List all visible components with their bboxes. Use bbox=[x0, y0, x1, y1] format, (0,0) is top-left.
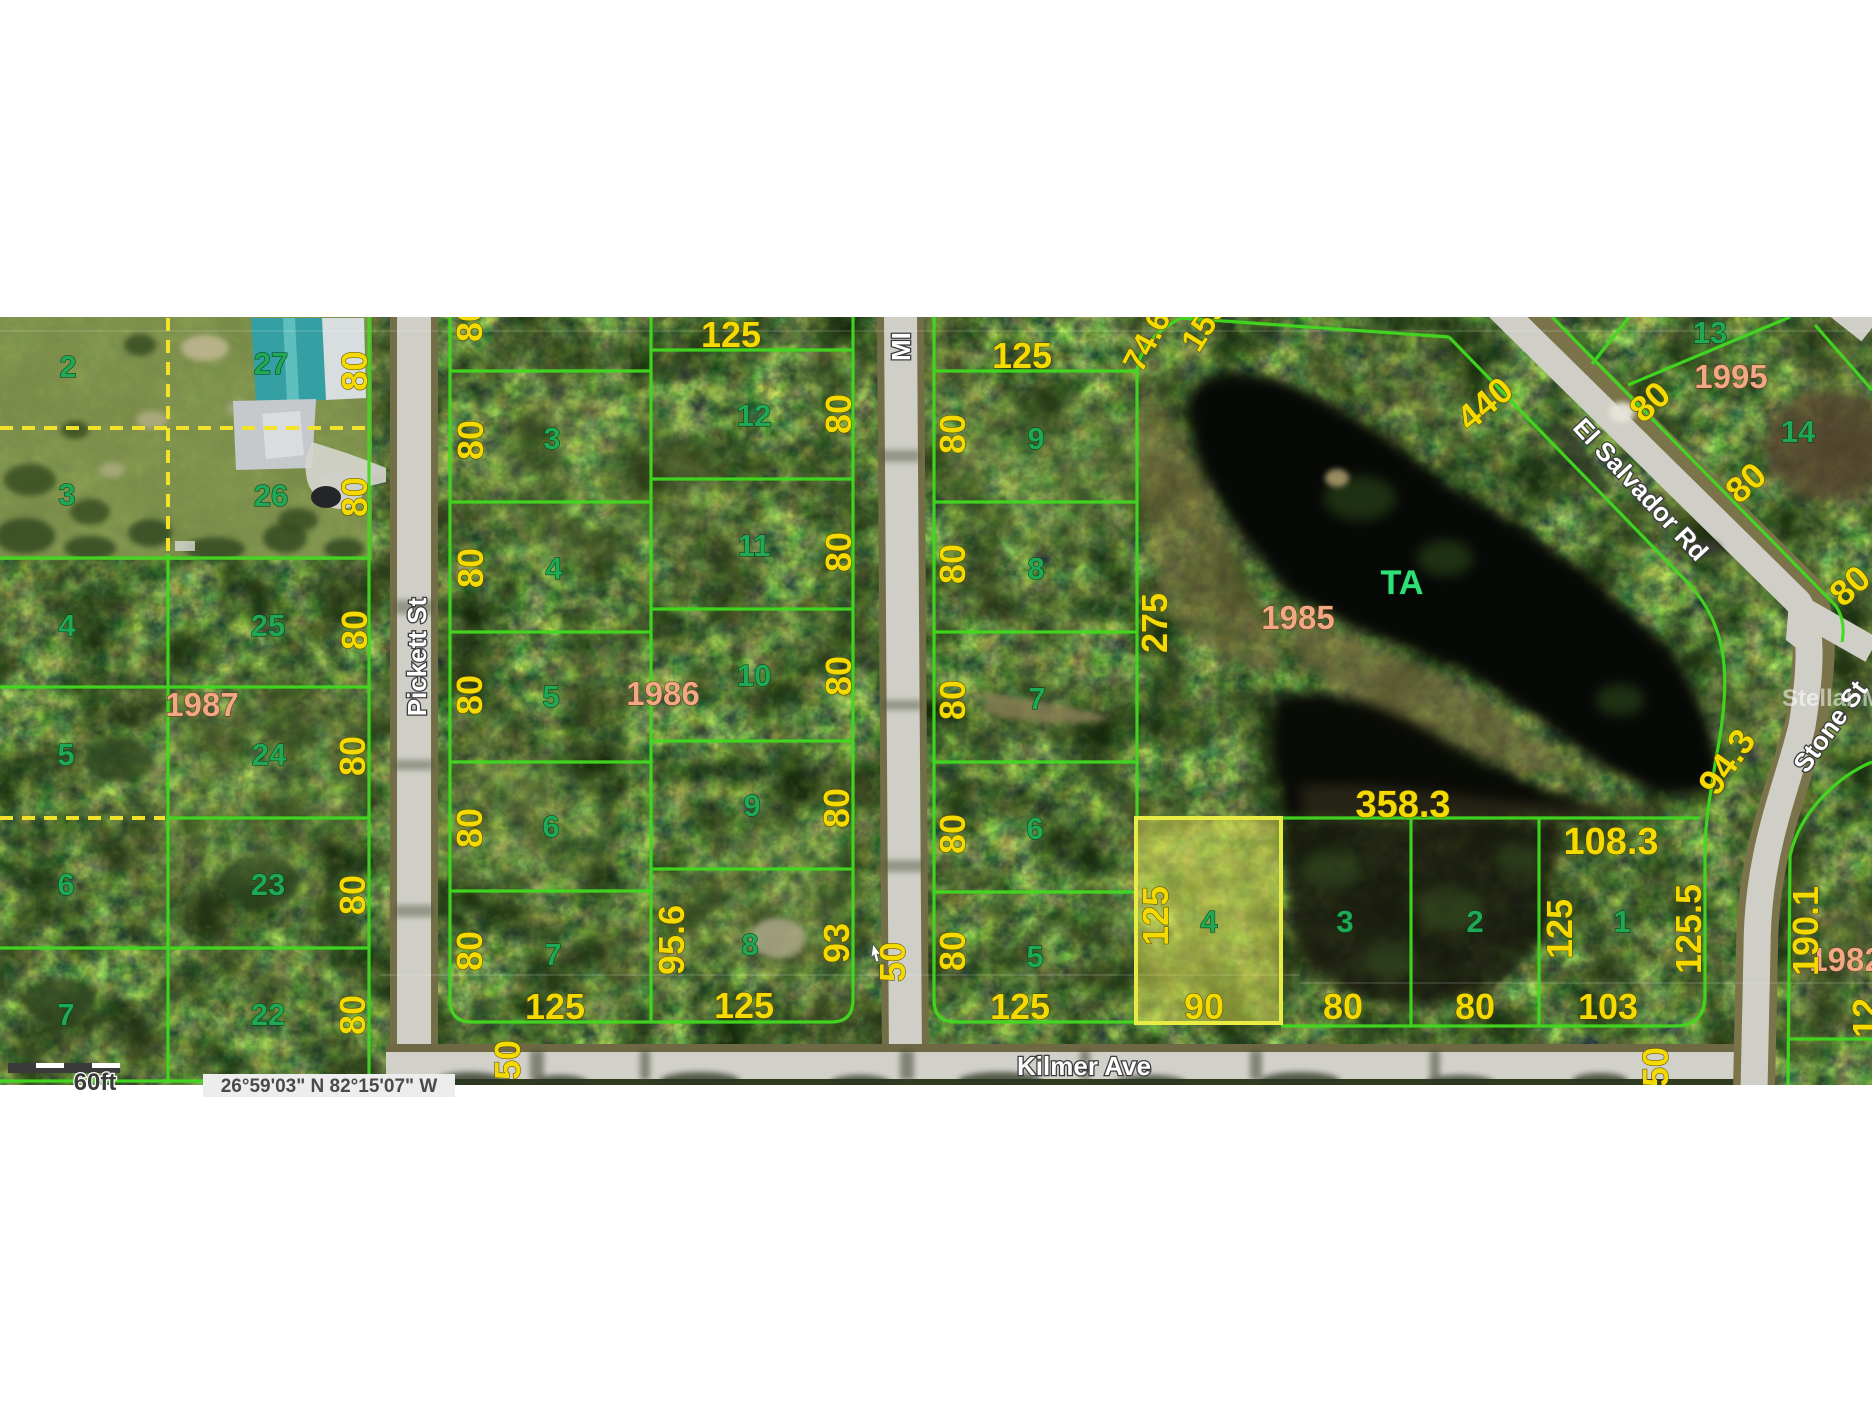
svg-text:3: 3 bbox=[1336, 904, 1353, 939]
svg-text:80: 80 bbox=[449, 808, 490, 848]
svg-text:6: 6 bbox=[1026, 811, 1043, 846]
svg-text:2: 2 bbox=[59, 349, 76, 384]
svg-text:TA: TA bbox=[1381, 564, 1424, 602]
svg-text:3: 3 bbox=[58, 477, 75, 512]
svg-text:80: 80 bbox=[332, 995, 373, 1035]
svg-text:80: 80 bbox=[450, 420, 491, 460]
svg-text:11: 11 bbox=[738, 528, 771, 563]
svg-text:80: 80 bbox=[932, 931, 973, 971]
svg-text:3: 3 bbox=[543, 421, 560, 456]
svg-text:9: 9 bbox=[1027, 421, 1044, 456]
svg-text:9: 9 bbox=[743, 788, 760, 823]
svg-text:125: 125 bbox=[525, 986, 585, 1027]
svg-text:50: 50 bbox=[487, 1040, 528, 1080]
svg-text:80: 80 bbox=[932, 544, 973, 584]
svg-text:125.5: 125.5 bbox=[1668, 884, 1709, 974]
svg-text:125: 125 bbox=[1135, 886, 1176, 946]
svg-text:MI: MI bbox=[886, 332, 916, 361]
svg-text:4: 4 bbox=[545, 551, 563, 586]
svg-text:26: 26 bbox=[254, 478, 288, 513]
svg-text:80: 80 bbox=[334, 477, 375, 517]
svg-text:22: 22 bbox=[251, 997, 285, 1032]
svg-text:Kilmer Ave: Kilmer Ave bbox=[1017, 1051, 1151, 1081]
svg-text:24: 24 bbox=[252, 737, 287, 772]
svg-text:80: 80 bbox=[818, 394, 859, 434]
svg-text:5: 5 bbox=[1026, 939, 1043, 974]
svg-text:12: 12 bbox=[1845, 998, 1872, 1038]
svg-text:93: 93 bbox=[816, 923, 857, 963]
svg-text:80: 80 bbox=[932, 680, 973, 720]
svg-text:80: 80 bbox=[332, 736, 373, 776]
svg-text:50: 50 bbox=[872, 942, 913, 982]
svg-text:103: 103 bbox=[1578, 986, 1638, 1027]
svg-text:1995: 1995 bbox=[1694, 358, 1767, 395]
svg-text:95.6: 95.6 bbox=[651, 905, 692, 975]
svg-text:7: 7 bbox=[544, 937, 561, 972]
svg-text:80: 80 bbox=[449, 931, 490, 971]
svg-text:23: 23 bbox=[251, 867, 285, 902]
svg-text:14: 14 bbox=[1781, 414, 1816, 449]
svg-text:7: 7 bbox=[57, 997, 74, 1032]
svg-text:358.3: 358.3 bbox=[1355, 784, 1450, 826]
svg-text:4: 4 bbox=[58, 608, 76, 643]
svg-text:13: 13 bbox=[1693, 315, 1727, 350]
svg-text:1: 1 bbox=[1613, 904, 1630, 939]
svg-text:5: 5 bbox=[542, 679, 559, 714]
svg-text:125: 125 bbox=[701, 314, 761, 355]
svg-text:125: 125 bbox=[992, 335, 1052, 376]
svg-text:1986: 1986 bbox=[626, 675, 699, 712]
svg-text:50: 50 bbox=[1635, 1047, 1676, 1087]
svg-text:125: 125 bbox=[990, 986, 1050, 1027]
svg-text:80: 80 bbox=[816, 788, 857, 828]
svg-text:90: 90 bbox=[1184, 986, 1224, 1027]
svg-text:80: 80 bbox=[818, 532, 859, 572]
svg-text:8: 8 bbox=[1027, 551, 1044, 586]
svg-text:80: 80 bbox=[332, 875, 373, 915]
svg-text:12: 12 bbox=[737, 398, 771, 433]
svg-text:Stellar MLS: Stellar MLS bbox=[1782, 685, 1872, 712]
svg-text:190.1: 190.1 bbox=[1785, 886, 1826, 976]
svg-text:80: 80 bbox=[450, 548, 491, 588]
svg-text:Pickett St: Pickett St bbox=[402, 597, 432, 716]
svg-text:125: 125 bbox=[1539, 899, 1580, 959]
svg-text:2: 2 bbox=[1466, 904, 1483, 939]
svg-text:80: 80 bbox=[449, 675, 490, 715]
svg-text:5: 5 bbox=[57, 737, 74, 772]
svg-text:25: 25 bbox=[251, 608, 285, 643]
svg-text:27: 27 bbox=[254, 346, 288, 381]
svg-text:80: 80 bbox=[334, 351, 375, 391]
svg-text:108.3: 108.3 bbox=[1563, 821, 1658, 863]
svg-text:1987: 1987 bbox=[165, 686, 238, 723]
svg-text:60ft: 60ft bbox=[74, 1069, 117, 1096]
svg-text:6: 6 bbox=[542, 809, 559, 844]
svg-text:6: 6 bbox=[57, 867, 74, 902]
svg-text:1985: 1985 bbox=[1261, 599, 1334, 636]
svg-text:80: 80 bbox=[1323, 986, 1363, 1027]
svg-text:80: 80 bbox=[334, 610, 375, 650]
svg-text:80: 80 bbox=[818, 656, 859, 696]
svg-text:8: 8 bbox=[741, 927, 758, 962]
svg-text:275: 275 bbox=[1134, 593, 1175, 653]
svg-text:7: 7 bbox=[1028, 681, 1045, 716]
svg-text:4: 4 bbox=[1200, 904, 1218, 939]
svg-text:125: 125 bbox=[714, 985, 774, 1026]
svg-text:26°59'03" N 82°15'07" W: 26°59'03" N 82°15'07" W bbox=[221, 1076, 438, 1097]
svg-text:80: 80 bbox=[1455, 986, 1495, 1027]
svg-text:80: 80 bbox=[932, 814, 973, 854]
svg-text:10: 10 bbox=[737, 658, 771, 693]
svg-text:80: 80 bbox=[932, 414, 973, 454]
